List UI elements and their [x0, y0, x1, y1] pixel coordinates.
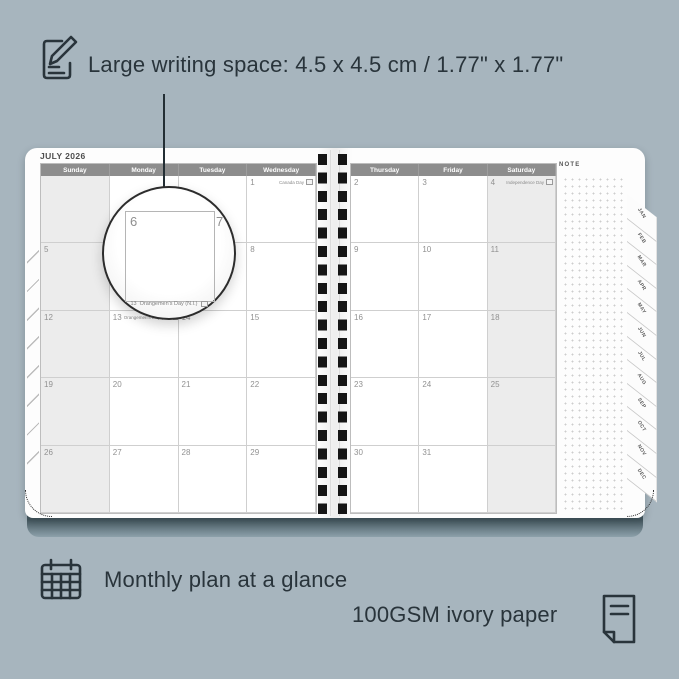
paper-sheet-icon — [596, 594, 638, 646]
magnified-holiday: 13 Orangemen's Day (N.I.) — [104, 301, 234, 307]
calendar-cell — [41, 176, 110, 243]
day-header: Saturday — [488, 164, 556, 176]
calendar-cell: 4 Independence Day — [488, 176, 556, 243]
calendar-cell: 2 — [351, 176, 419, 243]
day-header: Sunday — [41, 164, 110, 176]
calendar-cell: 31 — [419, 446, 487, 513]
calendar-cell: 17 — [419, 311, 487, 378]
day-header: Wednesday — [247, 164, 316, 176]
day-header: Monday — [110, 164, 179, 176]
calendar-cell: 5 — [41, 243, 110, 310]
calendar-grid-icon — [38, 556, 84, 602]
left-page-inner-edge — [330, 150, 331, 516]
magnifier-circle: 6 7 13 Orangemen's Day (N.I.) — [102, 186, 236, 320]
caption-pointer-line — [163, 94, 165, 189]
calendar-cell: 14 — [179, 311, 248, 378]
feature-caption-writing-space: Large writing space: 4.5 x 4.5 cm / 1.77… — [88, 52, 563, 78]
calendar-cell: 23 — [351, 378, 419, 445]
calendar-cell — [488, 446, 556, 513]
calendar-cell: 8 — [247, 243, 316, 310]
calendar-cell: 19 — [41, 378, 110, 445]
calendar-cell: 29 — [247, 446, 316, 513]
product-image: Large writing space: 4.5 x 4.5 cm / 1.77… — [0, 0, 679, 679]
day-header: Friday — [419, 164, 487, 176]
calendar-cell: 13 Orangemen's Day (N.I.) — [110, 311, 179, 378]
calendar-cell: 16 — [351, 311, 419, 378]
calendar-cell: 21 — [179, 378, 248, 445]
calendar-cell: 20 — [110, 378, 179, 445]
calendar-cell: 18 — [488, 311, 556, 378]
note-dot-grid — [562, 176, 624, 512]
magnified-adjacent-date: 7 — [216, 214, 223, 229]
note-column-label: NOTE — [559, 162, 580, 168]
calendar-cell: 9 — [351, 243, 419, 310]
spiral-binding — [318, 154, 327, 514]
feature-caption-monthly-plan: Monthly plan at a glance — [104, 567, 347, 593]
calendar-cell: 1 Canada Day — [247, 176, 316, 243]
calendar-cell: 10 — [419, 243, 487, 310]
holiday-flag-icon — [201, 301, 208, 307]
calendar-grid-right: Thursday Friday Saturday 2 3 4 Independe… — [350, 163, 557, 514]
calendar-cell: 24 — [419, 378, 487, 445]
calendar-cell: 27 — [110, 446, 179, 513]
calendar-cell: 11 — [488, 243, 556, 310]
day-header: Thursday — [351, 164, 419, 176]
calendar-cell: 15 — [247, 311, 316, 378]
margin-hatching — [27, 235, 39, 480]
calendar-cell: 25 — [488, 378, 556, 445]
calendar-cell: 22 — [247, 378, 316, 445]
holiday-flag-icon — [546, 179, 553, 185]
calendar-cell: 28 — [179, 446, 248, 513]
magnified-cell-border — [125, 211, 215, 302]
calendar-cell: 12 — [41, 311, 110, 378]
feature-caption-paper: 100GSM ivory paper — [352, 602, 557, 628]
spiral-binding — [338, 154, 347, 514]
holiday-flag-icon — [306, 179, 313, 185]
page-title: JULY 2026 — [40, 151, 86, 161]
corner-stitch-right — [627, 490, 654, 517]
calendar-cell: 3 — [419, 176, 487, 243]
calendar-cell: 30 — [351, 446, 419, 513]
pencil-note-icon — [40, 33, 78, 83]
day-header: Tuesday — [179, 164, 248, 176]
magnified-date: 6 — [130, 214, 137, 229]
